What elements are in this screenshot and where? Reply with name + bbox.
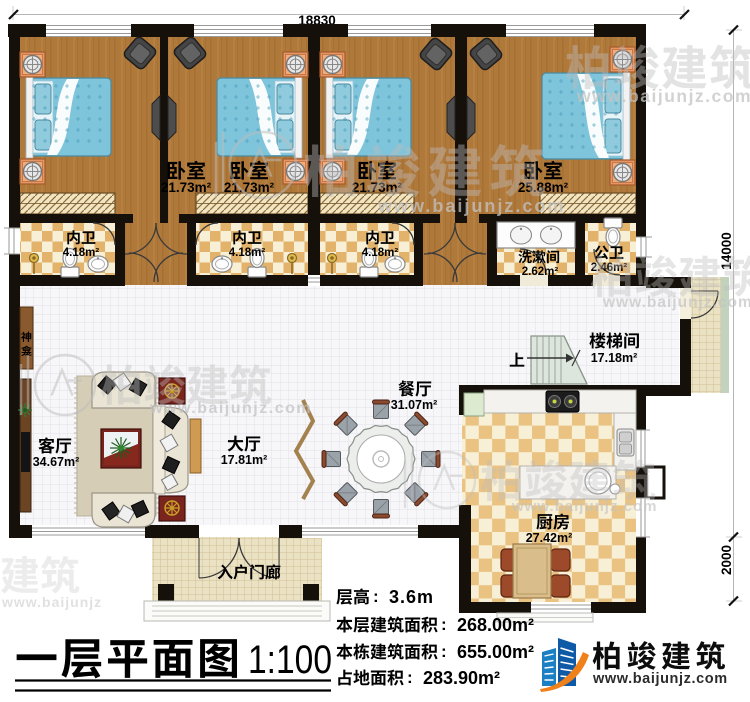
svg-text::: : — [373, 587, 379, 606]
svg-text:21.73m²: 21.73m² — [161, 180, 212, 195]
svg-text:3.6m: 3.6m — [389, 587, 434, 607]
svg-text:21.73m²: 21.73m² — [224, 180, 275, 195]
svg-text:www.baijunjz.com: www.baijunjz.com — [377, 196, 565, 216]
svg-text:2.62m²: 2.62m² — [522, 266, 559, 278]
svg-text:1:100: 1:100 — [248, 638, 332, 682]
svg-text:268.00m²: 268.00m² — [457, 615, 534, 635]
svg-text:283.90m²: 283.90m² — [423, 668, 500, 688]
svg-text:27.42m²: 27.42m² — [526, 531, 573, 545]
svg-text:www.baijunjz.com: www.baijunjz.com — [576, 86, 750, 106]
svg-text:www.baijunjz.com: www.baijunjz.com — [511, 498, 657, 515]
svg-text:www.baijunjz.com: www.baijunjz.com — [602, 294, 750, 311]
svg-text:www.baijunjz: www.baijunjz — [1, 594, 102, 610]
svg-text:655.00m²: 655.00m² — [457, 642, 534, 662]
svg-text:34.67m²: 34.67m² — [33, 455, 80, 469]
svg-text:4.18m²: 4.18m² — [362, 247, 399, 259]
svg-text:www.baijunjz.com: www.baijunjz.com — [592, 671, 728, 687]
svg-text:31.07m²: 31.07m² — [391, 398, 438, 412]
svg-text:2000: 2000 — [719, 545, 734, 575]
svg-text:www.baijunjz.com: www.baijunjz.com — [149, 400, 312, 417]
svg-text:4.18m²: 4.18m² — [63, 247, 100, 259]
svg-text:17.18m²: 17.18m² — [591, 351, 638, 365]
svg-text::: : — [441, 642, 447, 661]
svg-text:4.18m²: 4.18m² — [229, 247, 266, 259]
svg-text::: : — [407, 668, 413, 687]
svg-text:17.81m²: 17.81m² — [221, 453, 268, 467]
svg-text::: : — [441, 615, 447, 634]
